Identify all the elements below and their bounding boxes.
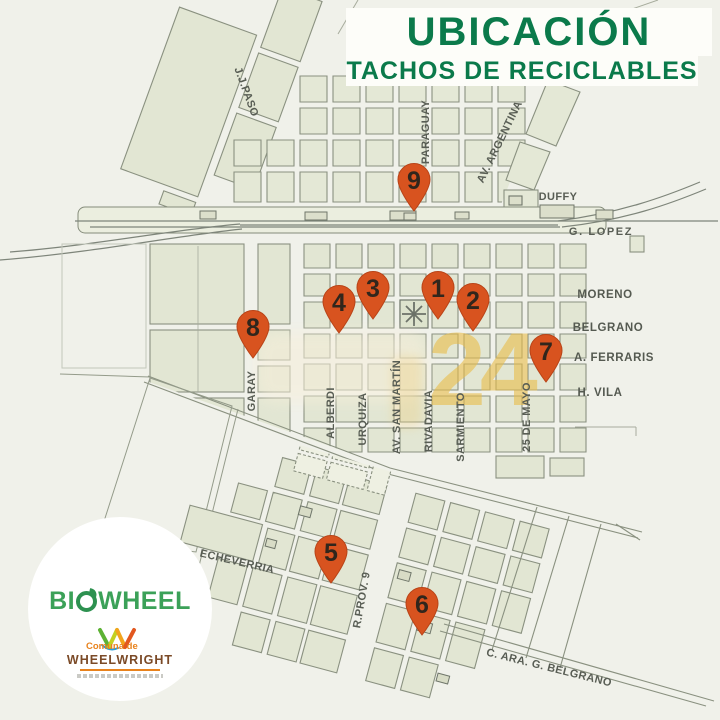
street-label-garay: GARAY [246, 371, 258, 412]
street-label-h-vila: H. VILA [577, 387, 622, 399]
wheelwright-label: WHEELWRIGHT [28, 652, 212, 668]
title-box: UBICACIÓN [346, 8, 712, 56]
pin-number: 1 [419, 274, 457, 304]
page-title: UBICACIÓN [407, 12, 652, 52]
pin-number: 7 [527, 337, 565, 367]
street-label-alberdi: ALBERDI [325, 387, 337, 439]
watermark-24: 24 [428, 318, 532, 422]
street-label-paraguay: PARAGUAY [420, 100, 432, 164]
subtitle-box: TACHOS DE RECICLABLES [346, 56, 698, 86]
pin-number: 6 [403, 590, 441, 620]
street-label-belgrano: BELGRANO [573, 322, 644, 334]
marker-pin-1[interactable]: 1 [419, 270, 457, 320]
pin-number: 9 [395, 166, 433, 196]
marker-pin-6[interactable]: 6 [403, 586, 441, 636]
recycle-ring-icon [76, 591, 97, 612]
biowheel-wordmark: BI WHEEL [28, 589, 212, 614]
street-label-25-de-mayo: 25 DE MAYO [521, 382, 533, 452]
marker-pin-3[interactable]: 3 [354, 270, 392, 320]
street-label-rivadavia: RIVADAVIA [423, 390, 435, 452]
street-label-av-san-martin: AV. SAN MARTÍN [391, 360, 403, 454]
pin-number: 3 [354, 274, 392, 304]
marker-pin-2[interactable]: 2 [454, 282, 492, 332]
street-label-a-ferraris: A. FERRARIS [574, 352, 654, 364]
street-label-sarmiento: SARMIENTO [455, 392, 467, 461]
orange-rule [80, 669, 160, 671]
street-label-moreno: MORENO [577, 289, 632, 301]
biowheel-prefix: BI [49, 589, 75, 614]
pin-number: 4 [320, 288, 358, 318]
comuna-block: Comuna de WHEELWRIGHT [28, 625, 212, 678]
tagline-blur [77, 674, 163, 678]
street-label-duffy: DUFFY [539, 191, 578, 203]
pin-number: 5 [312, 538, 350, 568]
pin-number: 8 [234, 313, 272, 343]
marker-pin-7[interactable]: 7 [527, 333, 565, 383]
page-subtitle: TACHOS DE RECICLABLES [346, 59, 697, 84]
biowheel-suffix: WHEEL [98, 589, 191, 614]
flyer-map-page: 24 J.J.PASO PARAGUAY AV. ARGENTINA DUFFY… [0, 0, 720, 720]
comuna-de-label: Comuna de [86, 642, 212, 652]
marker-pin-5[interactable]: 5 [312, 534, 350, 584]
pin-number: 2 [454, 286, 492, 316]
street-label-urquiza: URQUIZA [357, 393, 369, 446]
leaf-icon [88, 588, 98, 598]
street-label-g-lopez: G. LOPEZ [569, 226, 633, 238]
marker-pin-4[interactable]: 4 [320, 284, 358, 334]
marker-pin-9[interactable]: 9 [395, 162, 433, 212]
marker-pin-8[interactable]: 8 [234, 309, 272, 359]
biowheel-logo-badge: BI WHEEL Comuna de WHEELWRIGHT [28, 517, 212, 701]
